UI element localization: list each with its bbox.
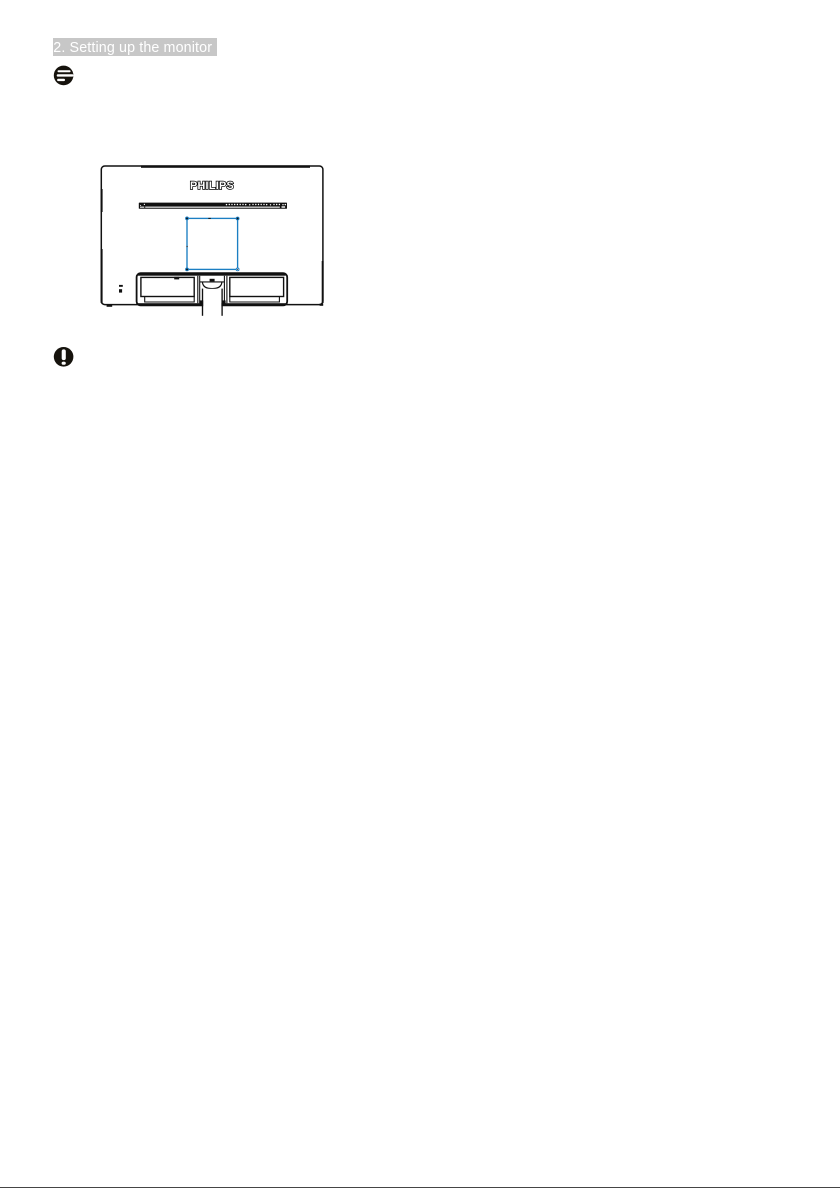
- svg-text:PHILIPS: PHILIPS: [190, 180, 234, 192]
